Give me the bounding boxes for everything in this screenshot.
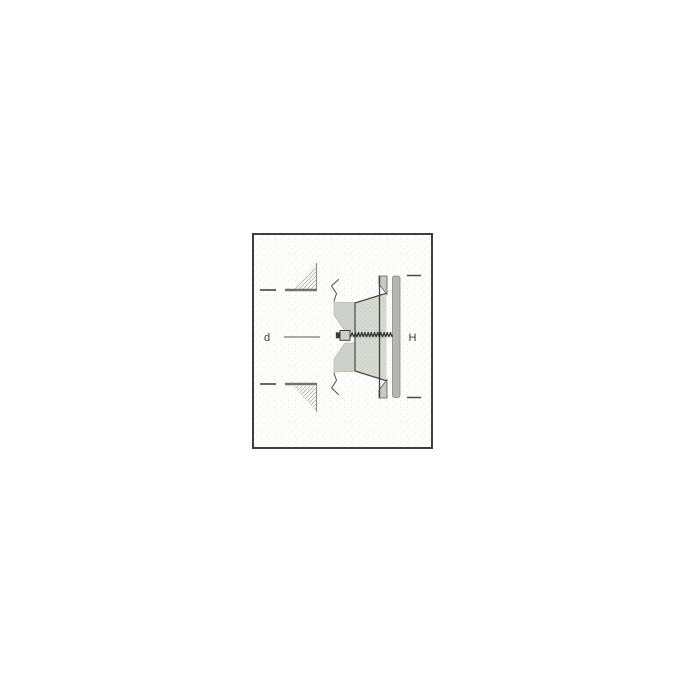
page: d H bbox=[0, 0, 685, 685]
adjustment-nut bbox=[340, 331, 350, 341]
label-duct-diameter: d bbox=[264, 332, 270, 344]
label-mounting-height: H bbox=[409, 332, 417, 344]
diagram-canvas: d H bbox=[0, 0, 685, 685]
diagram-frame bbox=[253, 234, 432, 448]
threaded-rod bbox=[351, 332, 393, 339]
frame-dot-texture bbox=[253, 234, 432, 448]
valve-disc-plate bbox=[393, 276, 401, 398]
rod-head bbox=[336, 332, 340, 338]
